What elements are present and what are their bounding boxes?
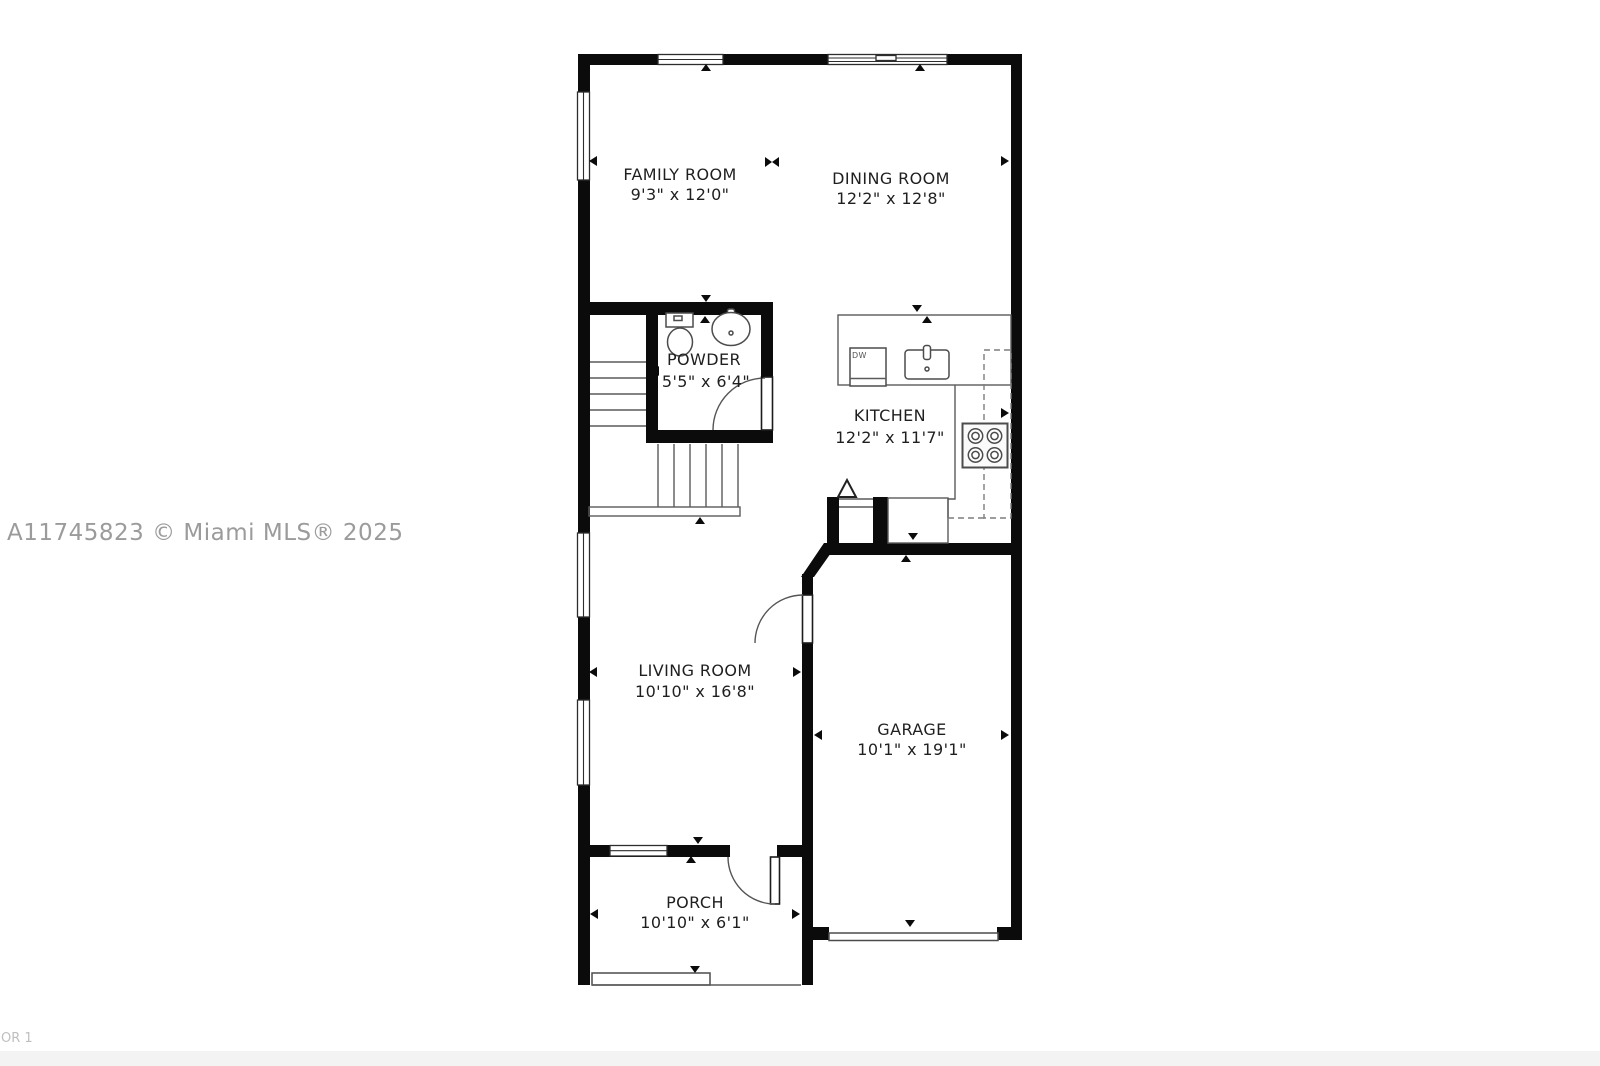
family-top-window: [658, 55, 723, 65]
doors: [713, 377, 814, 904]
water-heater-icon: [838, 480, 873, 507]
dishwasher-label: DW: [852, 351, 867, 360]
lower-counter: [888, 498, 948, 543]
garage-door-stub-right: [997, 927, 1022, 940]
family-room-dims: 9'3" x 12'0": [631, 185, 730, 204]
garage-label: GARAGE: [877, 720, 946, 739]
closet-right-wall: [873, 497, 888, 543]
living-left-window-1: [578, 533, 590, 617]
stove-icon: [963, 424, 1008, 468]
porch-window: [610, 846, 667, 857]
garage-hall-door: [755, 595, 814, 643]
living-room-label: LIVING ROOM: [638, 661, 751, 680]
garage-top-wall: [824, 543, 1022, 555]
garage-dims: 10'1" x 19'1": [857, 740, 966, 759]
garage-door: [829, 933, 998, 941]
stair-landing: [589, 507, 740, 516]
mls-watermark: A11745823 © Miami MLS® 2025: [7, 520, 403, 546]
dining-room-dims: 12'2" x 12'8": [836, 189, 945, 208]
page-edge: [0, 1051, 1600, 1066]
porch-entry-door: [728, 844, 780, 904]
powder-room-dims: 5'5" x 6'4": [662, 372, 750, 391]
living-room-dims: 10'10" x 16'8": [635, 682, 755, 701]
porch-dims: 10'10" x 6'1": [640, 913, 749, 932]
dining-room-label: DINING ROOM: [832, 169, 950, 188]
powder-fixtures: [666, 309, 750, 356]
kitchen-sink-icon: [905, 346, 949, 380]
porch-step: [592, 973, 801, 985]
floor-page-label: OR 1: [1, 1031, 33, 1046]
kitchen-label: KITCHEN: [854, 406, 926, 425]
family-room-label: FAMILY ROOM: [623, 165, 736, 184]
floor-plan: DW: [0, 0, 1600, 1066]
dining-slider-door: [828, 55, 947, 65]
top-wall: [578, 54, 1022, 65]
dishwasher-icon: DW: [850, 348, 886, 386]
garage-door-stub-left: [813, 927, 829, 940]
counter-right-edge: [948, 385, 955, 518]
kitchen-dims: 12'2" x 11'7": [835, 428, 944, 447]
powder-room-label: POWDER: [667, 350, 741, 369]
closet-left-wall: [827, 497, 839, 543]
powder-bottom-wall: [646, 430, 773, 443]
right-wall: [1011, 54, 1022, 940]
porch-label: PORCH: [666, 893, 724, 912]
family-left-window: [578, 92, 590, 180]
living-left-window-2: [578, 700, 590, 785]
